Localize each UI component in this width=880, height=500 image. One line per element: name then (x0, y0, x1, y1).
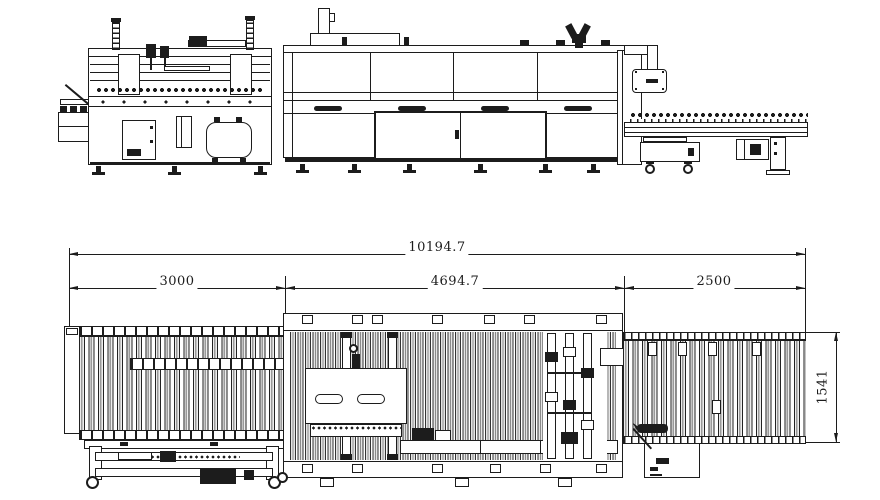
mount-tab (490, 464, 501, 473)
roller-stop (648, 342, 657, 356)
guide-cap (341, 454, 352, 460)
infeed-cap-box (66, 328, 78, 335)
pipe-elbow (647, 45, 658, 71)
tool-plate (164, 66, 210, 71)
frame-line (88, 96, 272, 97)
pump-column (176, 116, 192, 148)
guide-cap (341, 332, 352, 338)
gripper-pad (545, 352, 558, 362)
base-strip (285, 158, 618, 162)
guide-cap (387, 454, 398, 460)
mount-tab (484, 315, 495, 324)
plan-frame-line (284, 330, 622, 331)
machine-post (112, 22, 120, 50)
air-tank (206, 122, 252, 158)
gripper-pad (545, 392, 558, 402)
drive-latch (688, 148, 694, 156)
table-line (624, 132, 808, 133)
top-sensor-block (189, 36, 207, 46)
outfeed-top-band (623, 332, 806, 340)
junction-screw (635, 88, 637, 90)
tank-nub (214, 117, 220, 122)
infeed-top-rail (79, 326, 287, 336)
machine-foot (543, 164, 548, 170)
gripper-pad (563, 347, 576, 357)
machine-post (246, 20, 254, 50)
pendant-line (744, 139, 745, 160)
extension-line (624, 276, 625, 334)
extension-line (805, 248, 806, 332)
dim-arrow (834, 332, 838, 341)
body-line (283, 100, 620, 101)
dim-arrow (625, 286, 634, 290)
roller-row (96, 86, 264, 95)
shuttle-cylinder (118, 452, 152, 460)
tank-nub (236, 117, 242, 122)
sliding-door-split (460, 111, 461, 161)
infeed-sub-rail (84, 440, 284, 449)
mount-tab (524, 315, 535, 324)
body-line (283, 92, 620, 93)
dim-arrow (276, 286, 285, 290)
roof-fitting (556, 40, 565, 45)
plan-foot (455, 478, 469, 487)
caster-wheel (645, 164, 655, 174)
infeed-bottom-rail (79, 430, 287, 440)
mount-tab (372, 315, 383, 324)
roof-fitting (520, 40, 529, 45)
control-box-glyph (650, 474, 662, 476)
gripper-pad (581, 420, 594, 430)
junction-screw (662, 71, 664, 73)
machine-foot (478, 164, 483, 170)
shuttle-block (244, 470, 254, 480)
machine-foot (96, 166, 101, 172)
gripper-block (561, 432, 578, 444)
carriage-slot (315, 394, 343, 404)
control-box-glyph (656, 458, 669, 464)
carriage-comb (310, 424, 402, 437)
carriage-slot (357, 394, 385, 404)
junction-screw (662, 88, 664, 90)
machine-foot (591, 164, 596, 170)
dim-label-width: 1541 (816, 369, 831, 404)
plan-frame-line (284, 461, 622, 462)
post-cap (111, 18, 121, 22)
roller-stop (752, 342, 761, 356)
base-strip (90, 162, 270, 165)
dim-label-center: 4694.7 (428, 274, 483, 289)
control-box (644, 443, 700, 478)
door-vent (127, 149, 141, 156)
lower-beam-line (540, 440, 541, 454)
technical-drawing-canvas: 10194.7 3000 4694.7 2500 1541 (0, 0, 880, 500)
table-line (624, 127, 808, 128)
frame-line (88, 106, 272, 107)
machine-foot (172, 166, 177, 172)
tool-body (352, 354, 360, 368)
bolt-row (100, 99, 260, 105)
clamp-device (637, 424, 668, 433)
mount-tab (432, 315, 443, 324)
gripper-bar (583, 333, 592, 459)
corner-wheel (277, 472, 288, 483)
machine-foot (407, 164, 412, 170)
sub-rail-block (210, 442, 218, 446)
body-line (292, 52, 293, 158)
exhaust-stack-step (329, 13, 335, 22)
end-panel-line (622, 50, 623, 165)
door-hinge (150, 126, 153, 129)
tool-knob (349, 344, 358, 353)
mount-tab (596, 315, 607, 324)
shuttle-wheel (86, 476, 99, 489)
tool-stem (150, 58, 152, 70)
dim-label-infeed: 3000 (156, 274, 197, 289)
guide-cap (387, 332, 398, 338)
roof-fitting (601, 40, 610, 45)
dim-arrow (796, 286, 805, 290)
shuttle-motor (160, 451, 176, 462)
junction-screw (635, 71, 637, 73)
mount-tab (352, 315, 363, 324)
mount-tab (596, 464, 607, 473)
door-hinge (150, 140, 153, 143)
panel-handle (564, 106, 592, 111)
post-cap (245, 16, 255, 20)
pendant-screen (750, 144, 761, 155)
conveyor-leg (770, 137, 786, 170)
roof-hook (342, 37, 347, 46)
mount-tab (302, 315, 313, 324)
clamp-tool (146, 44, 156, 58)
mount-tab (432, 464, 443, 473)
roof-hook (404, 37, 409, 46)
dim-label-outfeed: 2500 (693, 274, 734, 289)
gripper-link (547, 412, 592, 414)
plan-foot (558, 478, 572, 487)
dim-arrow (69, 252, 78, 256)
control-box-glyph (650, 467, 658, 471)
plan-foot (320, 478, 334, 487)
sub-rail-block (120, 442, 128, 446)
machine-foot (300, 164, 305, 170)
mount-tab (540, 464, 551, 473)
caster-wheel (683, 164, 693, 174)
outfeed-end-panel (617, 50, 642, 165)
roller-stop (708, 342, 717, 356)
dim-label-total: 10194.7 (405, 240, 468, 255)
dimension-line-width (836, 332, 837, 442)
dim-arrow (834, 433, 838, 442)
gripper-pad (563, 400, 576, 410)
pump-column-line (181, 116, 182, 148)
sliding-door-handle (455, 130, 459, 139)
dim-arrow (796, 252, 805, 256)
dim-arrow (615, 286, 624, 290)
roller-stop (712, 400, 721, 414)
machine-foot (258, 166, 263, 172)
infeed-left-cap (64, 326, 80, 434)
junction-label (646, 79, 658, 83)
dim-arrow (286, 286, 295, 290)
mount-tab (302, 464, 313, 473)
infeed-rollers (79, 336, 287, 432)
valve-handle (565, 23, 578, 39)
conveyor-table (624, 122, 808, 137)
roof-hood (310, 33, 400, 46)
mount-tab (352, 464, 363, 473)
extension-line (806, 442, 840, 443)
dim-arrow (69, 286, 78, 290)
machine-foot (352, 164, 357, 170)
roller-stop (678, 342, 687, 356)
clamp-tool (160, 46, 169, 58)
infeed-cross-rail (130, 358, 288, 370)
extension-line (285, 276, 286, 316)
gripper-pad (581, 368, 594, 378)
panel-handle (314, 106, 342, 111)
leg-bolt (774, 152, 777, 155)
lower-beam-line (480, 440, 481, 454)
leg-foot-pad (766, 170, 790, 175)
leg-bolt (774, 142, 777, 145)
valve-handle (578, 23, 591, 39)
shuttle-gearbox (200, 468, 236, 484)
